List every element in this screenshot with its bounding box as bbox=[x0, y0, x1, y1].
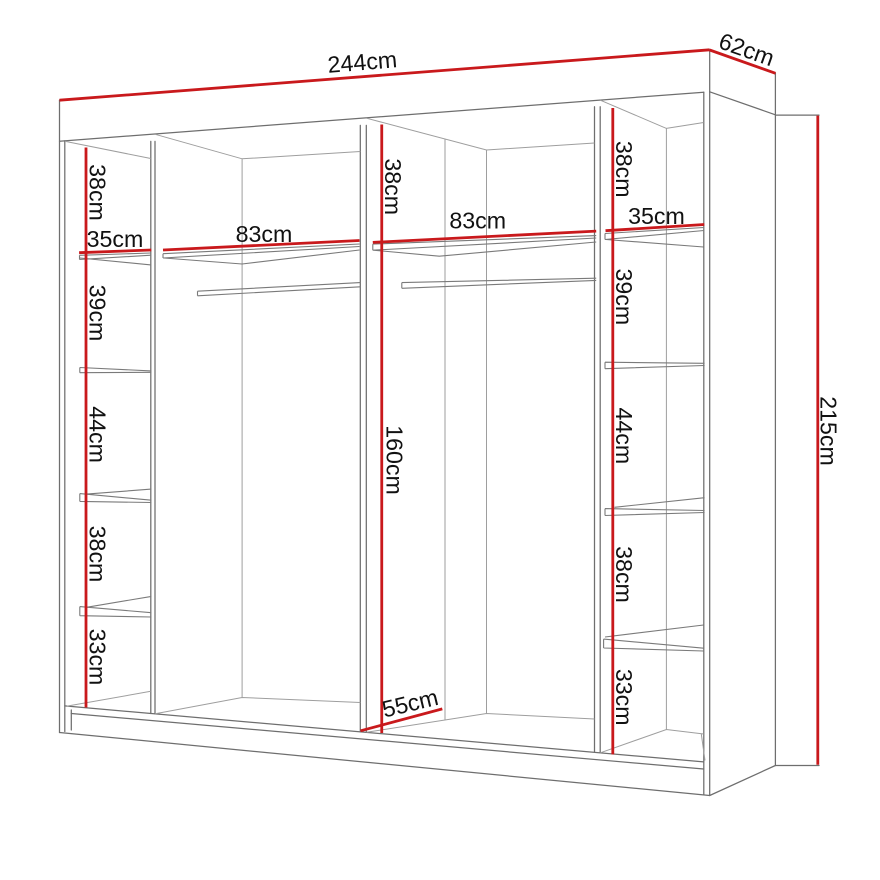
svg-text:39cm: 39cm bbox=[84, 285, 110, 342]
svg-text:39cm: 39cm bbox=[611, 268, 637, 325]
svg-text:38cm: 38cm bbox=[84, 164, 110, 221]
svg-text:35cm: 35cm bbox=[628, 203, 685, 229]
svg-text:38cm: 38cm bbox=[380, 158, 406, 215]
svg-text:35cm: 35cm bbox=[87, 226, 144, 252]
svg-text:83cm: 83cm bbox=[236, 221, 293, 247]
svg-text:38cm: 38cm bbox=[611, 141, 637, 198]
svg-text:83cm: 83cm bbox=[449, 208, 506, 234]
svg-text:44cm: 44cm bbox=[611, 407, 637, 464]
svg-text:33cm: 33cm bbox=[84, 629, 110, 686]
svg-text:160cm: 160cm bbox=[382, 425, 408, 495]
svg-text:38cm: 38cm bbox=[84, 526, 110, 583]
svg-text:33cm: 33cm bbox=[611, 669, 637, 726]
svg-text:38cm: 38cm bbox=[611, 546, 637, 603]
svg-text:215cm: 215cm bbox=[816, 396, 842, 466]
svg-text:44cm: 44cm bbox=[84, 406, 110, 463]
